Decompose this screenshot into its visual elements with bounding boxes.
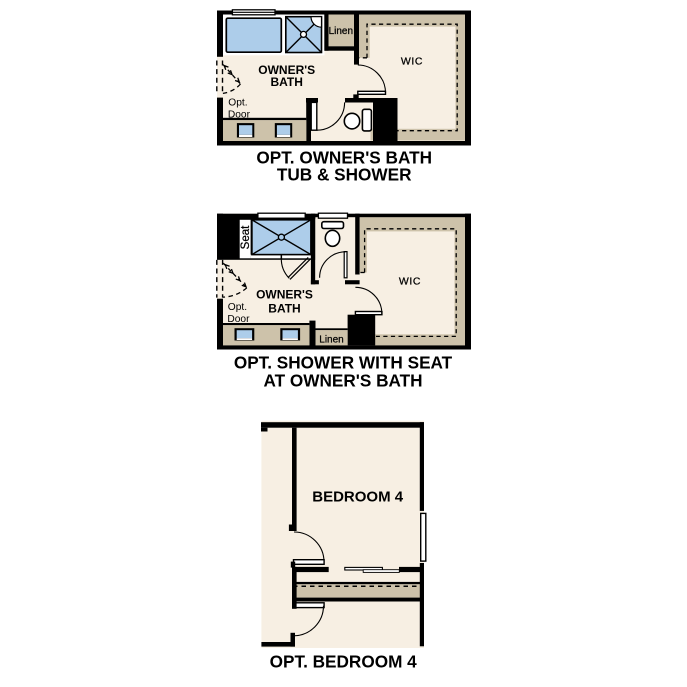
svg-text:AT OWNER'S BATH: AT OWNER'S BATH (263, 370, 422, 390)
svg-text:WIC: WIC (399, 275, 421, 287)
svg-text:TUB & SHOWER: TUB & SHOWER (277, 165, 412, 185)
svg-text:Opt.: Opt. (228, 302, 247, 313)
svg-text:Door: Door (228, 110, 251, 121)
svg-text:OPT. BEDROOM 4: OPT. BEDROOM 4 (270, 652, 418, 672)
svg-text:OPT. SHOWER WITH SEAT: OPT. SHOWER WITH SEAT (234, 352, 453, 372)
svg-text:Linen: Linen (319, 334, 343, 345)
svg-text:BATH: BATH (268, 302, 300, 316)
svg-text:Linen: Linen (329, 26, 353, 37)
svg-text:Door: Door (227, 314, 250, 325)
svg-text:BATH: BATH (270, 75, 302, 89)
svg-text:Seat: Seat (240, 225, 252, 249)
svg-text:OWNER'S: OWNER'S (256, 288, 313, 302)
svg-text:WIC: WIC (401, 56, 423, 68)
svg-text:BEDROOM 4: BEDROOM 4 (312, 489, 404, 506)
svg-text:Opt.: Opt. (228, 97, 247, 108)
